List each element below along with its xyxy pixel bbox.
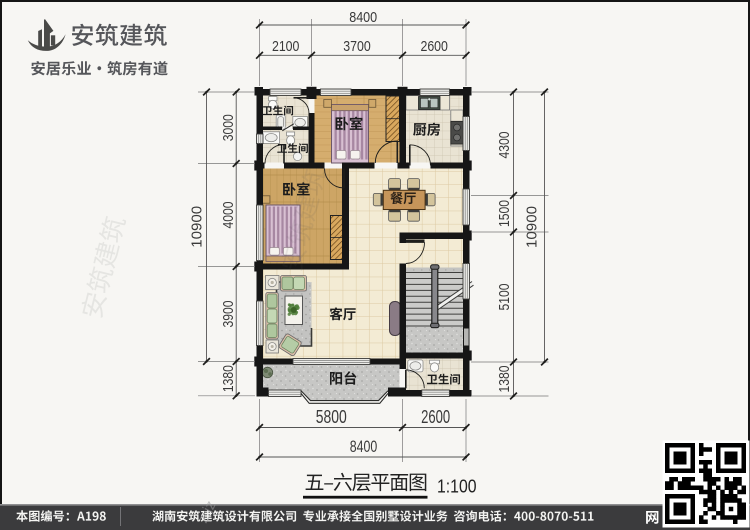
svg-text:3000: 3000 xyxy=(220,114,237,141)
svg-text:10900: 10900 xyxy=(524,206,541,248)
svg-text:4000: 4000 xyxy=(220,202,237,229)
svg-text:8400: 8400 xyxy=(349,9,377,26)
svg-text:10900: 10900 xyxy=(189,206,206,248)
svg-text:8400: 8400 xyxy=(350,437,378,456)
svg-text:1380: 1380 xyxy=(220,365,237,392)
svg-text:4300: 4300 xyxy=(496,132,513,159)
svg-text:1500: 1500 xyxy=(496,200,513,227)
svg-text:5100: 5100 xyxy=(496,284,513,311)
svg-text:2100: 2100 xyxy=(272,38,300,55)
svg-text:2600: 2600 xyxy=(421,406,450,427)
svg-text:1:100: 1:100 xyxy=(437,476,477,497)
svg-text:2600: 2600 xyxy=(420,38,448,55)
svg-text:5800: 5800 xyxy=(316,406,347,427)
svg-text:3700: 3700 xyxy=(343,38,371,55)
svg-text:1380: 1380 xyxy=(496,366,513,393)
svg-text:3900: 3900 xyxy=(220,301,237,328)
